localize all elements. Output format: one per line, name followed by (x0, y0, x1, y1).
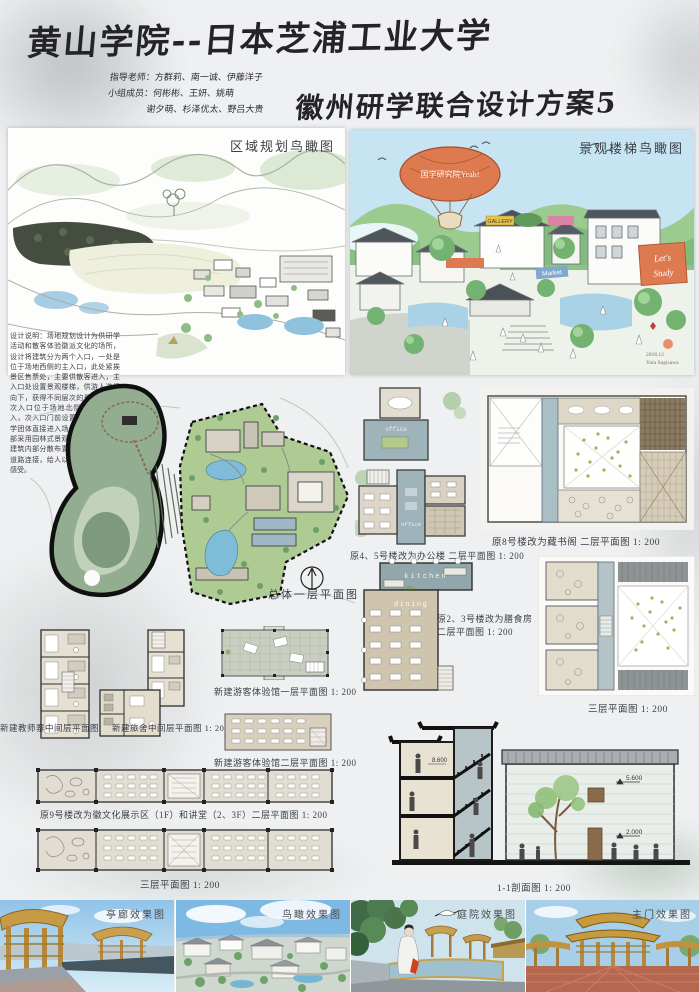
office-plan-lower: office (355, 468, 467, 546)
rendering-aerial: 鸟瞰效果图 (175, 900, 350, 992)
rendering-pavilion: 亭廊效果图 (0, 900, 174, 992)
rendering-courtyard: 庭院效果图 (350, 900, 525, 992)
visitor-center-1f-plan (218, 626, 332, 680)
site-plan-caption: 总体一层平面图 (268, 586, 359, 602)
level-low-text: 2.000 (626, 829, 643, 836)
round-sign (514, 213, 542, 227)
credits-block: 指导老师：方群莉、南一诚、伊藤洋子 小组成员：何彬彬、王妍、姚萌 谢夕萌、杉泽优… (105, 70, 267, 118)
courtyard-rendering-label: 庭院效果图 (457, 906, 517, 921)
shop-banner (446, 258, 484, 268)
signature-name: Yuta Sugisawa (646, 360, 679, 366)
level-mid-text: 5.600 (626, 775, 643, 782)
lets-study-line2: Study (653, 267, 674, 278)
building9-2f-plan (36, 766, 334, 806)
signature-date: 2018.12 (646, 352, 664, 358)
lets-study-line1: Let's (653, 252, 672, 263)
credits-teachers: 指导老师：方群莉、南一诚、伊藤洋子 (109, 70, 268, 86)
building9-2f-caption: 原9号楼改为徽文化展示区（1F）和讲堂（2、3F）二层平面图 1: 200 (40, 808, 328, 821)
rendering-gate: 主门效果图 (525, 900, 699, 992)
building9-3f-caption: 三层平面图 1: 200 (140, 877, 220, 891)
hostel-caption: 新建旅舍中间层平面图 1: 200 (112, 722, 229, 734)
landscape-stairs-label: 景观楼梯鸟瞰图 (579, 138, 684, 157)
office-room-label-upper: office (385, 426, 407, 433)
gallery-sign-text: GALLERY (487, 219, 513, 225)
design-poster: 黄山学院--日本芝浦工业大学 指导老师：方群莉、南一诚、伊藤洋子 小组成员：何彬… (0, 0, 699, 992)
poster-subtitle: 徽州研学联合设计方案5 (294, 81, 620, 127)
visitor-center-2f-plan (222, 712, 334, 752)
stair-tower-section: 8.600 (390, 722, 497, 860)
dining-plan-caption-1: 原2、3号楼改为膳食房 (437, 612, 533, 625)
kitchen-label: kitchen (404, 573, 447, 581)
dining-plan-caption-2: 二层平面图 1: 200 (437, 625, 513, 638)
visitor-1f-caption: 新建游客体验馆一层平面图 1: 200 (214, 685, 357, 698)
poster-title: 黄山学院--日本芝浦工业大学 (25, 8, 494, 65)
pink-sign (548, 216, 574, 225)
office-room-label-lower: office (401, 521, 421, 528)
landscape-stairs-drawing: 国学研究院Yeah! (350, 130, 694, 375)
library-plan-caption: 原8号楼改为藏书阁 二层平面图 1: 200 (492, 534, 660, 548)
aerial-rendering-label: 鸟瞰效果图 (282, 906, 342, 921)
section-drawing: 8.600 5.600 2.000 (388, 712, 694, 877)
pavilion-rendering-label: 亭廊效果图 (106, 906, 166, 921)
office-plan-upper: office (352, 385, 470, 463)
credits-members: 小组成员：何彬彬、王妍、姚萌 (107, 86, 266, 102)
level-top-text: 8.600 (432, 758, 448, 764)
landscape-stairs-panel: 国学研究院Yeah! (350, 130, 694, 375)
orange-ball (663, 339, 673, 349)
ink-wash-top-right (620, 0, 699, 140)
third-floor-plan (538, 556, 695, 696)
dining-label: dining (394, 601, 428, 609)
credits-members-2: 谢夕萌、杉泽优太、野吕大贵 (105, 102, 264, 118)
hill-pavilion (122, 416, 137, 425)
balloon-text: 国学研究院Yeah! (421, 169, 480, 179)
section-caption: 1-1剖面图 1: 200 (497, 880, 571, 894)
courtyard-building-section: 5.600 2.000 (502, 750, 678, 860)
regional-aerial-label: 区域规划鸟瞰图 (230, 136, 335, 155)
building9-3f-plan (36, 826, 334, 874)
lets-study-banner: Let's Study (639, 242, 688, 285)
library-plan (480, 388, 694, 530)
gate-rendering-label: 主门效果图 (632, 906, 692, 921)
site-plan-drawing (30, 378, 355, 613)
